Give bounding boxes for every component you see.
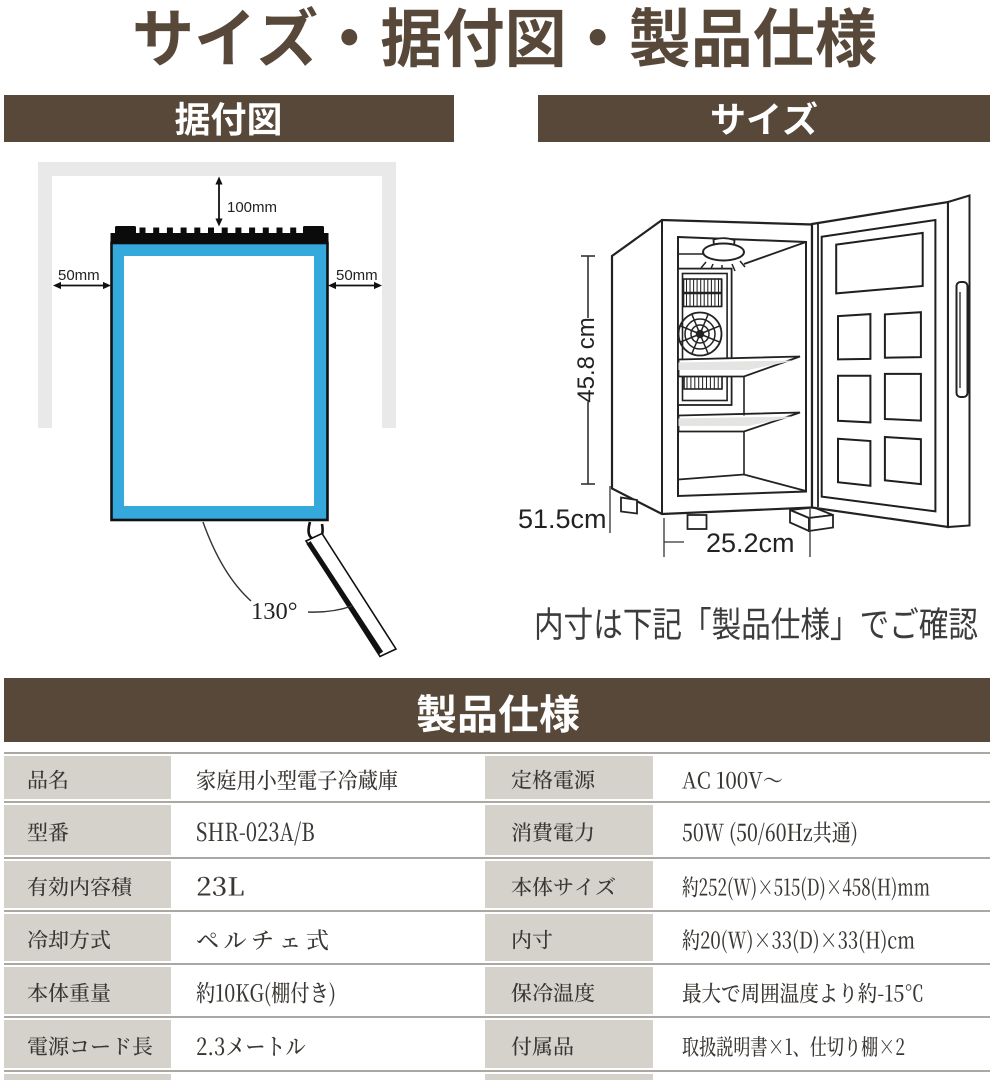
svg-text:50mm: 50mm bbox=[58, 267, 100, 284]
svg-text:45.8 cm: 45.8 cm bbox=[573, 317, 600, 402]
svg-text:25.2cm: 25.2cm bbox=[706, 528, 795, 558]
svg-text:51.5cm: 51.5cm bbox=[518, 504, 607, 534]
svg-text:130°: 130° bbox=[251, 598, 298, 625]
svg-text:50mm: 50mm bbox=[336, 267, 378, 284]
svg-text:100mm: 100mm bbox=[227, 199, 277, 216]
